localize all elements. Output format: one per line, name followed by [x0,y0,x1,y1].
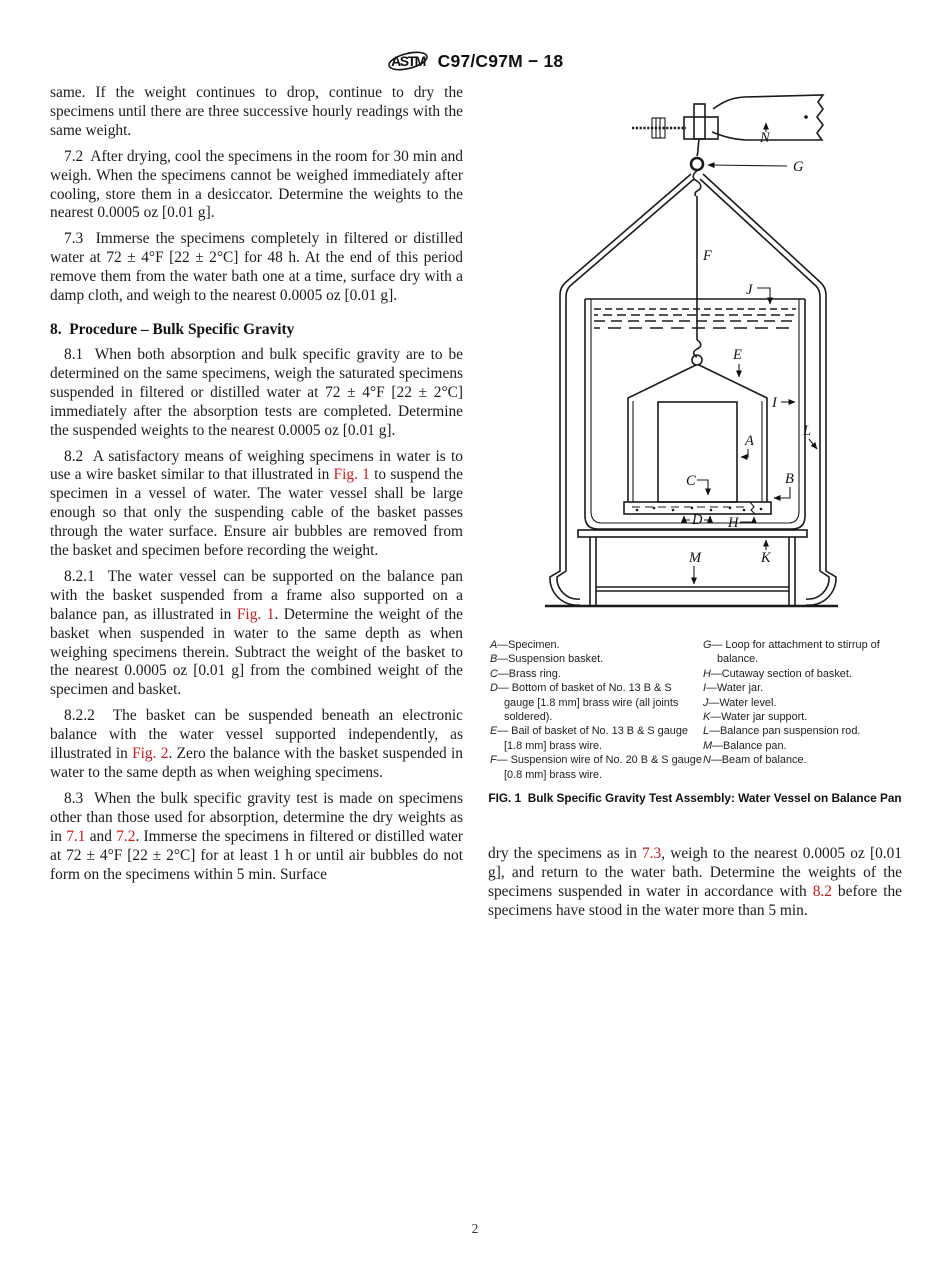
body-paragraph: same. If the weight continues to drop, c… [50,84,463,141]
legend-column-left: A—Specimen.B—Suspension basket.C—Brass r… [490,638,703,782]
label-H: H [727,515,740,531]
legend-entry: I—Water jar. [703,681,922,695]
document-title: C97/C97M − 18 [438,51,564,72]
label-I: I [771,395,778,411]
legend-entry: M—Balance pan. [703,739,922,753]
legend-entry: A—Specimen. [490,638,703,652]
label-L: L [802,423,811,439]
label-C: C [686,473,696,489]
water-jar [585,299,805,529]
text-run: 8.1 When both absorption and bulk specif… [50,346,463,439]
body-paragraph: 7.3 Immerse the specimens completely in … [50,230,463,306]
body-paragraph: 8.3 When the bulk specific gravity test … [50,790,463,885]
svg-text:ASTM: ASTM [391,53,426,69]
label-E: E [732,347,742,363]
label-N: N [759,130,771,146]
figure-1: N G F J E I L A C B D H K [490,92,930,632]
figure-legend: A—Specimen.B—Suspension basket.C—Brass r… [490,638,922,782]
legend-entry: D— Bottom of basket of No. 13 B & S gaug… [490,681,703,724]
text-run: and [85,828,116,845]
text-run: same. If the weight continues to drop, c… [50,84,463,139]
page-number: 2 [0,1221,950,1237]
label-M: M [688,550,702,566]
label-G: G [793,159,804,175]
legend-column-right: G— Loop for attachment to stirrup of bal… [703,638,922,782]
legend-entry: B—Suspension basket. [490,652,703,666]
page-header: ASTM C97/C97M − 18 [0,46,950,76]
suspension-wire [691,139,703,365]
body-paragraph: 7.2 After drying, cool the specimens in … [50,148,463,224]
cross-reference-link[interactable]: Fig. 1 [334,466,370,483]
suspension-frame [550,174,836,605]
left-column: same. If the weight continues to drop, c… [50,84,463,884]
legend-entry: N—Beam of balance. [703,753,922,767]
body-paragraph: 8.1 When both absorption and bulk specif… [50,346,463,441]
document-page: ASTM C97/C97M − 18 same. If the weight c… [0,0,950,1272]
label-F: F [702,248,712,264]
cross-reference-link[interactable]: Fig. 1 [237,606,275,623]
legend-entry: L—Balance pan suspension rod. [703,724,922,738]
cutaway-break [750,502,755,514]
section-heading: 8. Procedure – Bulk Specific Gravity [50,320,463,339]
legend-entry: G— Loop for attachment to stirrup of bal… [703,638,922,667]
label-A: A [744,433,754,449]
label-D: D [691,512,703,528]
text-run: 7.2 After drying, cool the specimens in … [50,148,463,222]
legend-entry: C—Brass ring. [490,667,703,681]
cross-reference-link[interactable]: 8.2 [813,883,832,900]
balance-beam [632,95,823,140]
figure-caption: FIG. 1 Bulk Specific Gravity Test Assemb… [488,790,902,806]
specimen [658,402,737,502]
water-level [594,309,796,328]
legend-entry: F— Suspension wire of No. 20 B & S gauge… [490,753,703,782]
legend-entry: K—Water jar support. [703,710,922,724]
figure-labels: N G F J E I L A C B D H K [684,123,817,584]
cross-reference-link[interactable]: 7.1 [66,828,85,845]
figure-drawing: N G F J E I L A C B D H K [490,92,930,632]
text-run: dry the specimens as in [488,845,642,862]
legend-entry: J—Water level. [703,696,922,710]
legend-entry: H—Cutaway section of basket. [703,667,922,681]
legend-entry: E— Bail of basket of No. 13 B & S gauge … [490,724,703,753]
cross-reference-link[interactable]: 7.3 [642,845,661,862]
astm-logo: ASTM [387,46,429,76]
jar-support-and-pan [545,530,838,606]
label-K: K [760,550,772,566]
body-paragraph: 8.2.2 The basket can be suspended beneat… [50,707,463,783]
text-run: 7.3 Immerse the specimens completely in … [50,230,463,304]
cross-reference-link[interactable]: 7.2 [116,828,135,845]
body-paragraph: 8.2.1 The water vessel can be supported … [50,568,463,700]
right-column-paragraph: dry the specimens as in 7.3, weigh to th… [488,845,902,921]
cross-reference-link[interactable]: Fig. 2 [132,745,168,762]
label-J: J [746,282,753,298]
label-B: B [785,471,794,487]
body-paragraph: 8.2 A satisfactory means of weighing spe… [50,448,463,561]
